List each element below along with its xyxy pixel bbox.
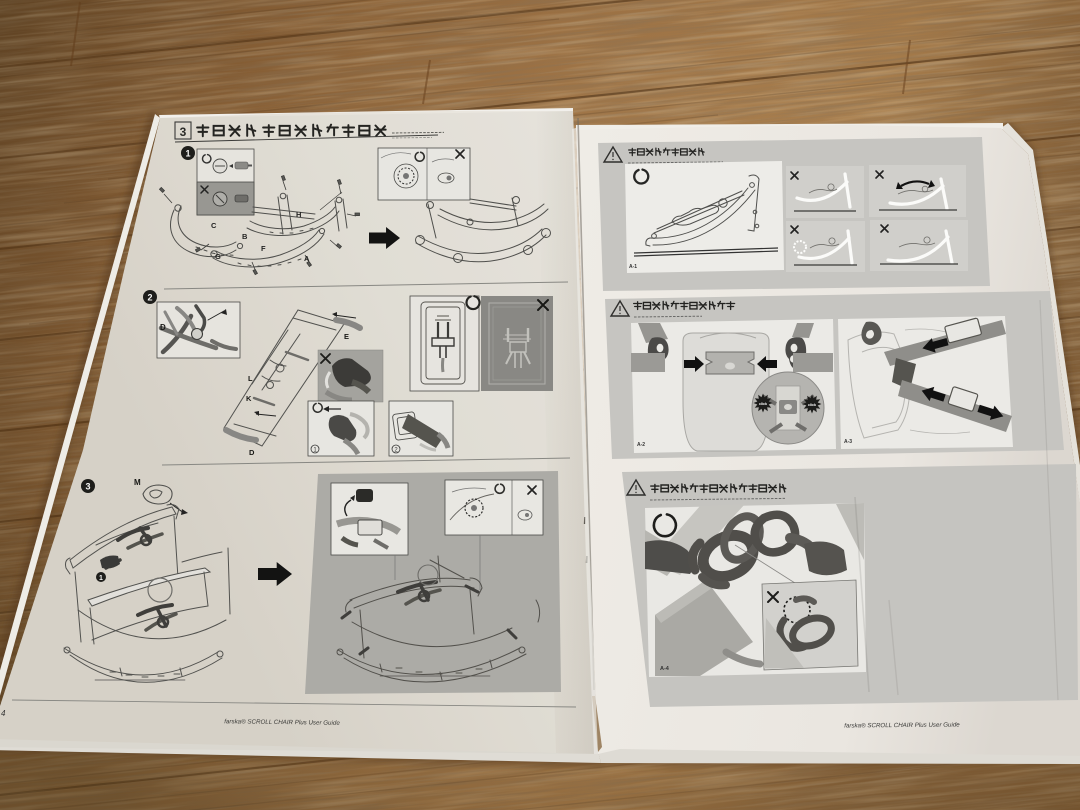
svg-text:click: click (759, 402, 767, 406)
svg-text:A-1: A-1 (629, 264, 637, 270)
svg-text:farska® SCROLL CHAIR Plus User: farska® SCROLL CHAIR Plus User Guide (844, 721, 960, 729)
svg-text:A-4: A-4 (660, 666, 670, 672)
svg-text:click: click (808, 403, 816, 407)
svg-text:A-3: A-3 (844, 439, 852, 445)
svg-text:A-2: A-2 (637, 442, 645, 448)
